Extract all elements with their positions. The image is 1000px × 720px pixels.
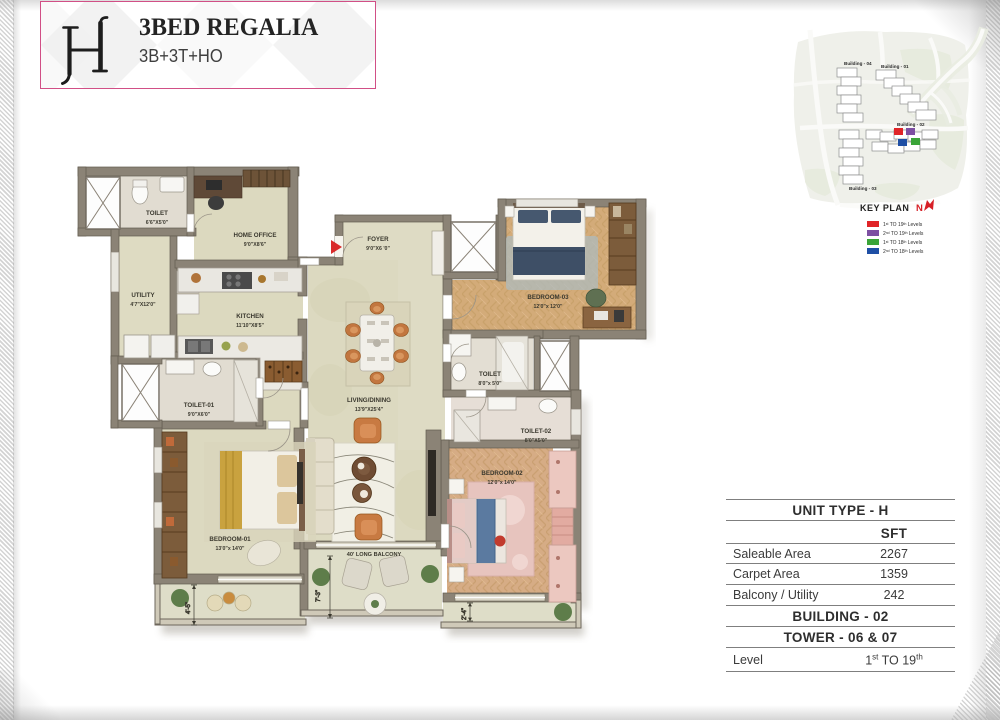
svg-text:TOILET-01: TOILET-01 bbox=[184, 402, 215, 409]
svg-text:4'7"X12'0": 4'7"X12'0" bbox=[130, 302, 156, 308]
svg-text:8'0"x 5'0": 8'0"x 5'0" bbox=[478, 381, 502, 387]
svg-text:BEDROOM-03: BEDROOM-03 bbox=[527, 294, 569, 301]
svg-text:12'0"x 14'0": 12'0"x 14'0" bbox=[487, 480, 517, 486]
svg-text:8'0"X5'0": 8'0"X5'0" bbox=[525, 438, 548, 444]
svg-text:12'0"x 12'0": 12'0"x 12'0" bbox=[533, 304, 563, 310]
svg-text:13'9"X25'4": 13'9"X25'4" bbox=[355, 407, 384, 413]
svg-text:TOILET-02: TOILET-02 bbox=[521, 428, 552, 435]
svg-text:11'10"X8'5": 11'10"X8'5" bbox=[236, 323, 264, 329]
svg-text:BEDROOM-02: BEDROOM-02 bbox=[481, 470, 523, 477]
svg-text:KITCHEN: KITCHEN bbox=[236, 313, 264, 320]
svg-text:40' LONG BALCONY: 40' LONG BALCONY bbox=[347, 552, 402, 558]
svg-text:UTILITY: UTILITY bbox=[131, 292, 155, 299]
svg-text:9'0"X8'6": 9'0"X8'6" bbox=[244, 242, 267, 248]
svg-text:7'-3": 7'-3" bbox=[316, 590, 322, 602]
svg-text:2'-4": 2'-4" bbox=[462, 608, 468, 620]
svg-text:TOILET: TOILET bbox=[479, 371, 501, 378]
svg-text:TOILET: TOILET bbox=[146, 210, 168, 217]
svg-text:9'0"X6'0": 9'0"X6'0" bbox=[188, 412, 211, 418]
svg-text:FOYER: FOYER bbox=[367, 236, 389, 243]
svg-text:HOME OFFICE: HOME OFFICE bbox=[234, 232, 277, 239]
svg-text:6'6"X5'0": 6'6"X5'0" bbox=[146, 220, 169, 226]
svg-text:BEDROOM-01: BEDROOM-01 bbox=[209, 536, 251, 543]
svg-text:4'-5": 4'-5" bbox=[186, 602, 192, 614]
svg-text:LIVING/DINING: LIVING/DINING bbox=[347, 397, 391, 404]
svg-text:9'0"X6 '0": 9'0"X6 '0" bbox=[366, 246, 390, 252]
svg-text:13'0"x 14'0": 13'0"x 14'0" bbox=[215, 546, 245, 552]
